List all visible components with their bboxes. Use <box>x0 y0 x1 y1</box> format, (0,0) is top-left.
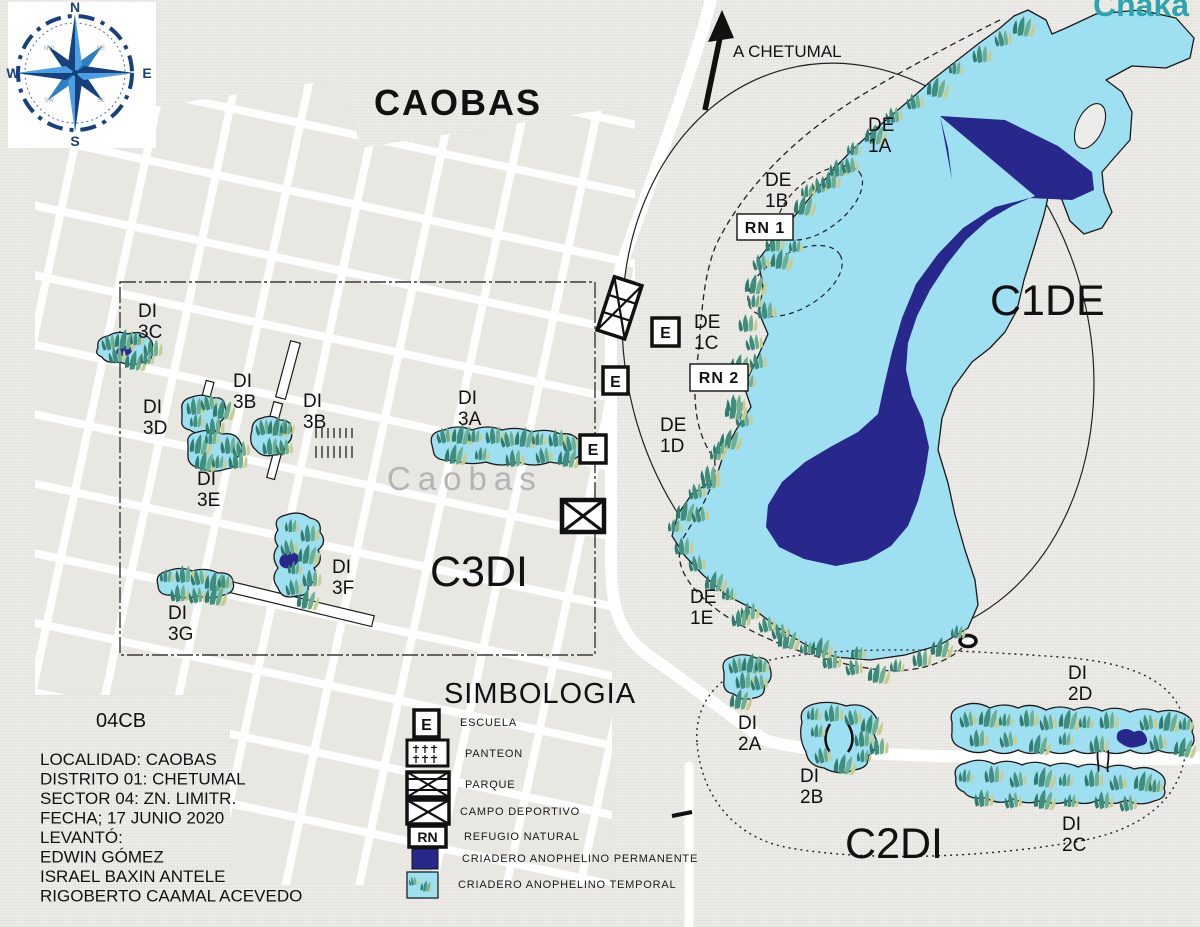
svg-text:CRIADERO ANOPHELINO TEMPORAL: CRIADERO ANOPHELINO TEMPORAL <box>458 879 676 891</box>
svg-text:2C: 2C <box>1062 835 1086 856</box>
svg-text:3B: 3B <box>233 392 256 413</box>
sector-c3di-label: C3DI <box>430 548 528 596</box>
svg-text:1E: 1E <box>690 608 713 629</box>
svg-text:2B: 2B <box>800 787 823 808</box>
svg-text:RN: RN <box>417 829 437 845</box>
svg-text:CRIADERO ANOPHELINO PERMANENTE: CRIADERO ANOPHELINO PERMANENTE <box>462 853 698 865</box>
direction-label: A CHETUMAL <box>733 42 842 61</box>
svg-text:DI: DI <box>197 469 216 490</box>
sector-c1de-label: C1DE <box>990 277 1105 325</box>
svg-text:PANTEON: PANTEON <box>465 748 523 760</box>
map-canvas: E E E RN 1 RN 2 A CHETUMAL N S E <box>0 0 1200 927</box>
escuela-symbol-2: E <box>603 367 628 394</box>
site-de-1d: DE1D <box>660 415 686 457</box>
svg-text:PARQUE: PARQUE <box>465 779 515 791</box>
refugio-natural-1: RN 1 <box>737 214 793 240</box>
site-di-2b: DI2B <box>800 766 823 808</box>
campo-deportivo-symbol <box>562 500 604 532</box>
svg-text:CAMPO DEPORTIVO: CAMPO DEPORTIVO <box>460 806 580 818</box>
escuela-symbol-3: E <box>580 435 606 463</box>
svg-text:DI: DI <box>458 388 477 409</box>
svg-text:DE: DE <box>765 170 791 191</box>
svg-text:DE: DE <box>660 415 686 436</box>
svg-text:DI: DI <box>233 371 252 392</box>
refugio-natural-2: RN 2 <box>690 364 748 391</box>
compass-rose: N S E W NW NE SW SE <box>6 0 156 149</box>
svg-text:E: E <box>421 717 432 734</box>
svg-text:3C: 3C <box>138 322 162 343</box>
site-di-2d: DI2D <box>1068 663 1092 705</box>
svg-text:1C: 1C <box>694 333 718 354</box>
page-title: CAOBAS <box>374 82 542 123</box>
svg-text:LEVANTÓ:: LEVANTÓ: <box>40 828 123 847</box>
svg-text:DI: DI <box>800 766 819 787</box>
svg-text:3F: 3F <box>332 578 354 599</box>
svg-text:DI: DI <box>138 301 157 322</box>
compass-ne: NE <box>97 46 105 52</box>
svg-text:3B: 3B <box>303 412 326 433</box>
svg-text:2A: 2A <box>738 734 762 755</box>
svg-text:REFUGIO NATURAL: REFUGIO NATURAL <box>464 831 580 843</box>
site-di-2c: DI2C <box>1062 814 1086 856</box>
compass-se: SE <box>97 98 105 104</box>
svg-text:ESCUELA: ESCUELA <box>460 717 517 729</box>
svg-text:DI: DI <box>143 397 162 418</box>
svg-text:DI: DI <box>1068 663 1087 684</box>
svg-text:DISTRITO 01: CHETUMAL: DISTRITO 01: CHETUMAL <box>40 770 246 789</box>
c2di-breeding-patches <box>723 655 1194 804</box>
site-de-1e: DE1E <box>690 587 716 629</box>
site-di-2a: DI2A <box>738 713 762 755</box>
corner-label: Chaka <box>1093 0 1189 23</box>
svg-text:E: E <box>610 374 621 391</box>
compass-s: S <box>70 133 79 149</box>
svg-text:SECTOR 04: ZN. LIMITR.: SECTOR 04: ZN. LIMITR. <box>40 789 236 808</box>
compass-w: W <box>6 65 20 81</box>
site-de-1c: DE1C <box>694 312 720 354</box>
svg-text:DI: DI <box>303 391 322 412</box>
caobas-map: E E E RN 1 RN 2 A CHETUMAL N S E <box>0 0 1200 927</box>
sector-c2di-label: C2DI <box>845 820 943 868</box>
legend-title: SIMBOLOGIA <box>444 678 636 710</box>
lake-temporal-area <box>672 10 1194 660</box>
svg-text:E: E <box>588 442 599 459</box>
svg-text:RN 2: RN 2 <box>699 370 739 387</box>
site-de-1a: DE1A <box>868 115 894 157</box>
svg-text:2D: 2D <box>1068 684 1092 705</box>
svg-text:DI: DI <box>1062 814 1081 835</box>
svg-text:DE: DE <box>868 115 894 136</box>
svg-text:RN 1: RN 1 <box>745 220 785 237</box>
compass-nw: NW <box>44 46 54 52</box>
svg-text:3E: 3E <box>197 490 220 511</box>
svg-text:ISRAEL BAXIN ANTELE: ISRAEL BAXIN ANTELE <box>40 867 226 886</box>
svg-text:DI: DI <box>332 557 351 578</box>
compass-e: E <box>142 65 151 81</box>
svg-text:LOCALIDAD: CAOBAS: LOCALIDAD: CAOBAS <box>40 750 217 769</box>
svg-text:3A: 3A <box>458 409 482 430</box>
svg-text:1B: 1B <box>765 191 788 212</box>
svg-text:1A: 1A <box>868 136 892 157</box>
sector-code: 04CB <box>96 710 146 732</box>
svg-text:RIGOBERTO CAAMAL ACEVEDO: RIGOBERTO CAAMAL ACEVEDO <box>40 887 302 906</box>
svg-text:EDWIN GÓMEZ: EDWIN GÓMEZ <box>40 848 164 867</box>
site-de-1b: DE1B <box>765 170 791 212</box>
compass-n: N <box>70 0 80 15</box>
svg-text:DI: DI <box>168 603 187 624</box>
svg-text:3G: 3G <box>168 624 193 645</box>
svg-text:DI: DI <box>738 713 757 734</box>
svg-text:DE: DE <box>694 312 720 333</box>
town-name-watermark: Caobas <box>387 460 543 497</box>
svg-text:1D: 1D <box>660 436 684 457</box>
svg-text:3D: 3D <box>143 418 167 439</box>
svg-text:E: E <box>660 325 671 342</box>
svg-text:DE: DE <box>690 587 716 608</box>
compass-sw: SW <box>44 98 54 104</box>
escuela-symbol-1: E <box>652 318 679 346</box>
svg-text:FECHA; 17 JUNIO 2020: FECHA; 17 JUNIO 2020 <box>40 809 224 828</box>
site-di-3f: DI3F <box>332 557 354 599</box>
